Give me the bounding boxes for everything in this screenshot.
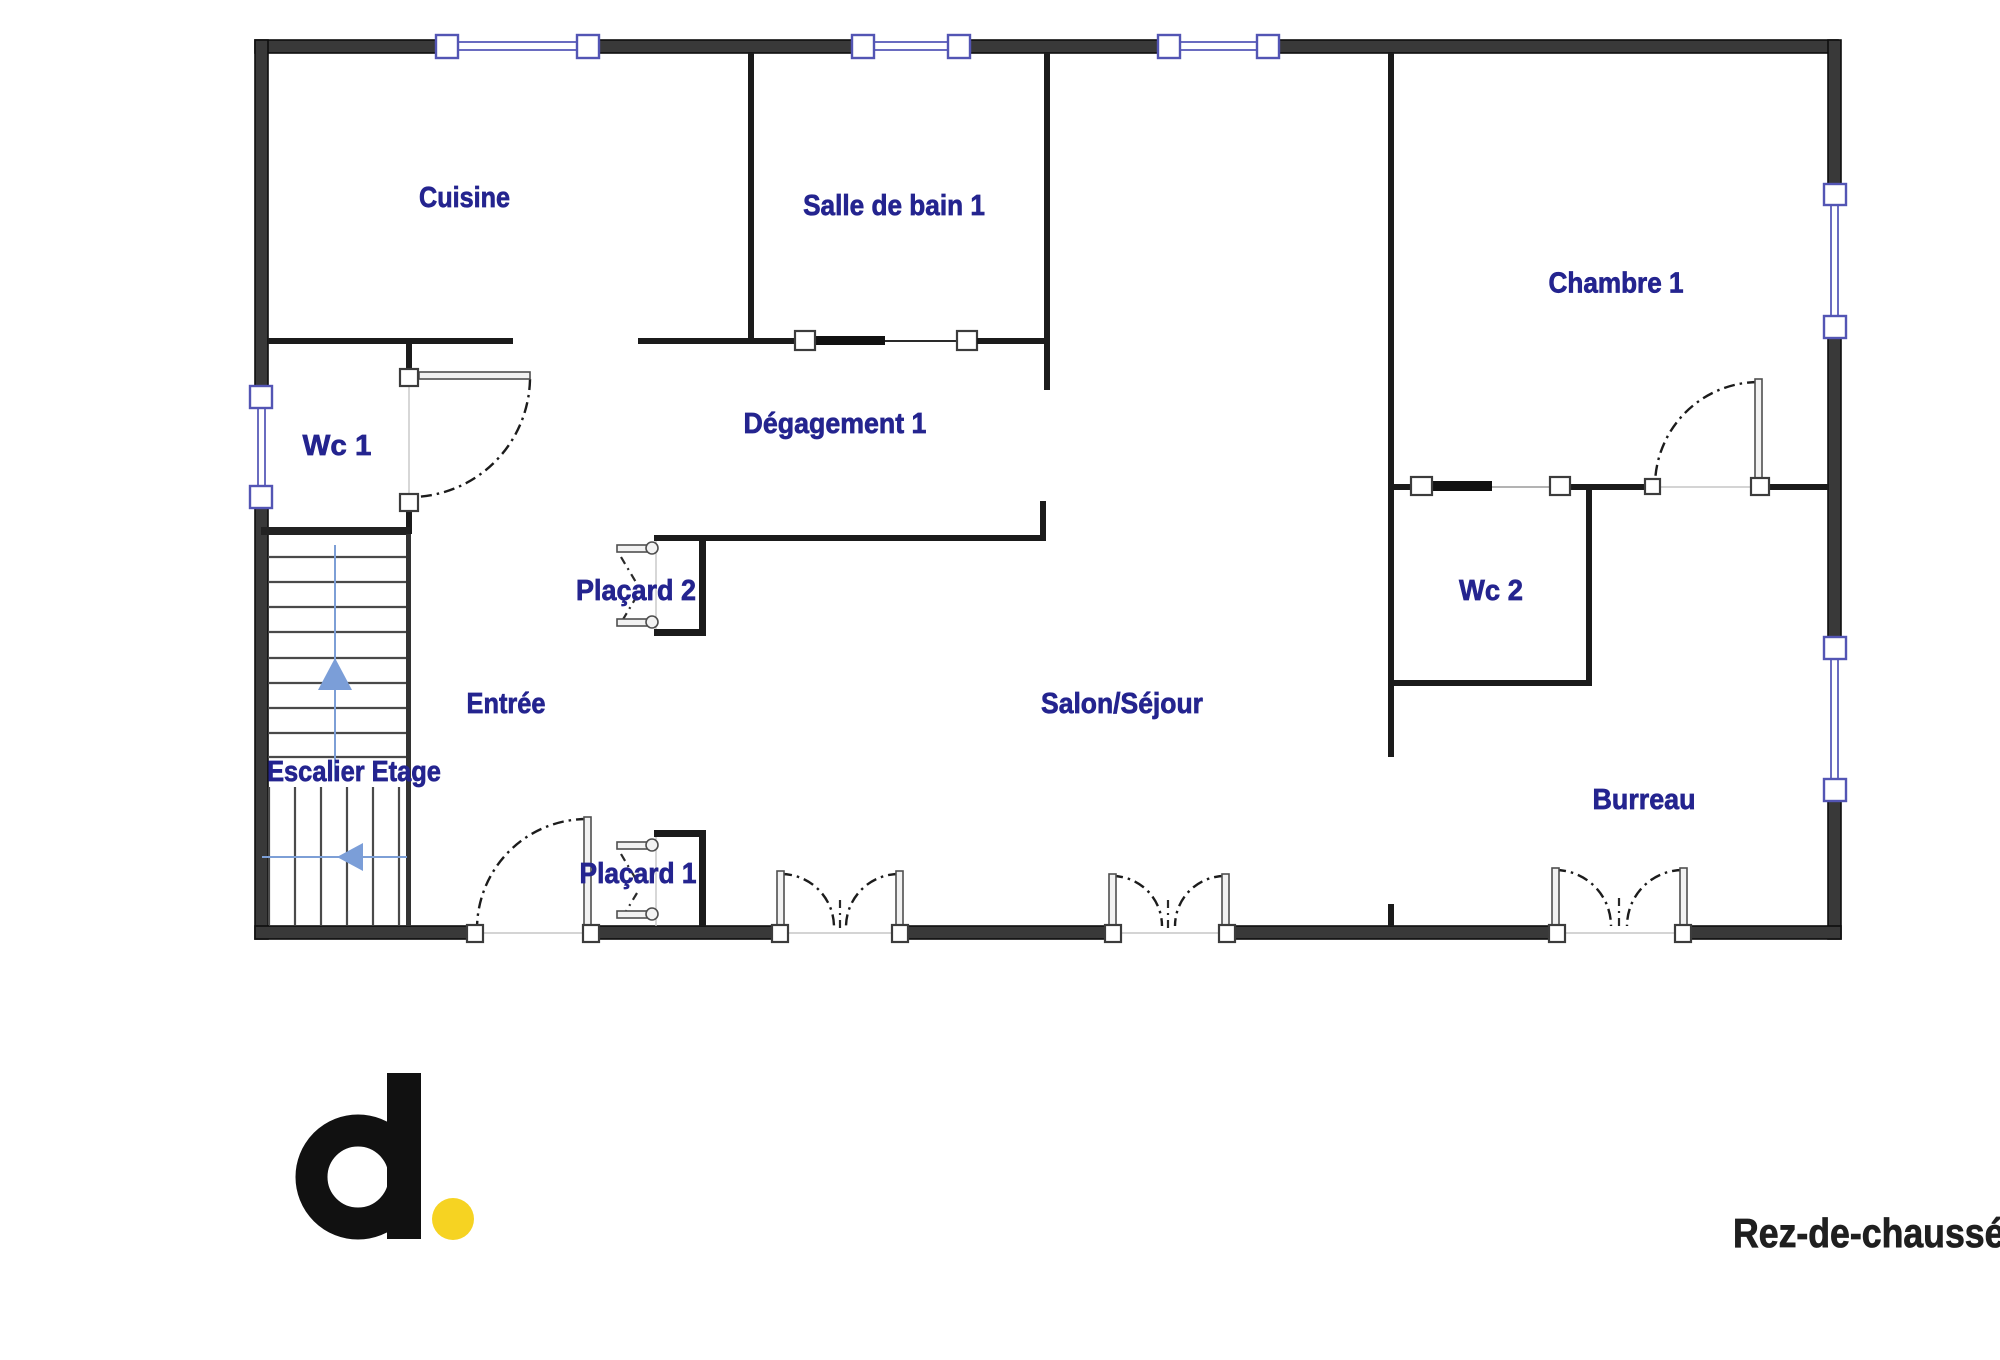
- svg-text:Entrée: Entrée: [467, 686, 546, 719]
- svg-text:Dégagement 1: Dégagement 1: [744, 407, 927, 439]
- svg-text:Wc 1: Wc 1: [303, 430, 372, 462]
- svg-text:Chambre 1: Chambre 1: [1548, 266, 1683, 299]
- svg-text:Escalier Etage: Escalier Etage: [267, 754, 441, 787]
- svg-text:Cuisine: Cuisine: [419, 180, 510, 213]
- svg-text:Rez-de-chaussée: Rez-de-chaussée: [1733, 1211, 2000, 1257]
- svg-text:Plaçard 2: Plaçard 2: [576, 574, 696, 606]
- svg-text:Wc 2: Wc 2: [1459, 573, 1523, 606]
- svg-text:Plaçard 1: Plaçard 1: [580, 857, 697, 889]
- svg-text:Burreau: Burreau: [1593, 783, 1696, 815]
- svg-text:Salle de bain 1: Salle de bain 1: [803, 189, 985, 222]
- svg-text:Salon/Séjour: Salon/Séjour: [1041, 687, 1203, 719]
